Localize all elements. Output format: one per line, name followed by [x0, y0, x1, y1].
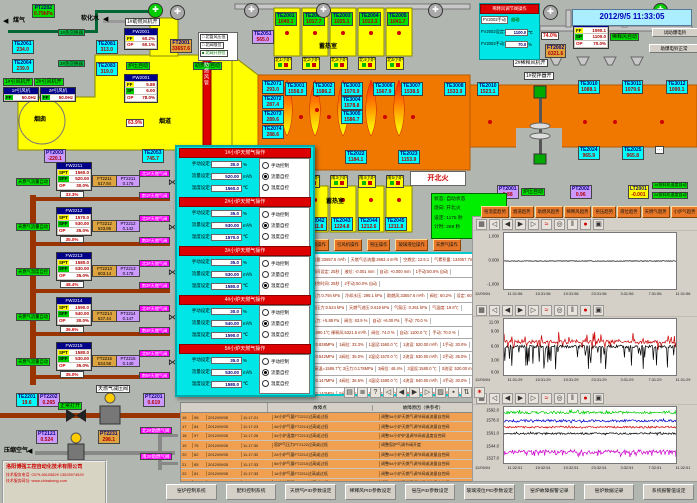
instrument-TE3001: TE30011558.0 [285, 82, 307, 96]
temp-set-input[interactable]: 1580.0 [211, 283, 242, 290]
instrument-value: 0.96 [572, 192, 590, 198]
spt-value: 1570.0 [75, 215, 90, 221]
mimic-label: ◀ [102, 16, 109, 24]
fan-icon: ✚ [170, 5, 185, 20]
mimic-label: 正常打开 [58, 402, 82, 410]
manual-set-input[interactable]: 35.0 [211, 259, 242, 266]
pressure-transmitter: PT2213 0.178 [116, 265, 140, 277]
op-label: OP [58, 363, 67, 369]
alarm-time: 11:17:32 [242, 452, 273, 457]
fv2002-man-unit: % [528, 42, 532, 47]
controller-param-value: 1090.1 [592, 28, 607, 34]
alarm-index: 19 [181, 443, 193, 448]
alarm-date: 2012/09/05 [207, 471, 242, 476]
south-gas-valve-label: 南1#天燃气阀 [139, 192, 170, 199]
y-axis-tick: 1.000 [489, 233, 499, 238]
toolbar-icon[interactable]: ◀ [502, 393, 513, 404]
toolbar-icon[interactable]: ▣ [593, 393, 604, 404]
burner-port-北4小炉: 北4小炉 [358, 57, 376, 70]
y-axis-tick: 1561.0 [486, 430, 499, 435]
instrument-value: 0.265 [40, 400, 58, 406]
toolbar-icon[interactable]: ▷ [528, 393, 539, 404]
toolbar-icon[interactable]: ≈ [541, 219, 552, 230]
instrument-TE2010: TE20101523.1 [477, 82, 499, 96]
instrument-PT2202: PT22020.79kPa [32, 4, 55, 18]
instrument-TE2043: TE20431224.8 [331, 217, 353, 231]
flow-set-input[interactable]: 540.00 [211, 320, 242, 327]
fault-cause-header: 故障原因（供参考） [373, 405, 473, 411]
burner-port-南4小炉: 南4小炉 [358, 175, 376, 188]
alarm-time: 11:17:33 [242, 462, 273, 467]
process-table-cell: 1手动:50.0% 自动 [414, 269, 452, 275]
process-table-cell: 2阀位: 35.0% [337, 354, 366, 360]
pt-value: 0.176 [118, 181, 138, 186]
nav-button[interactable]: 窑炉数据记录 [584, 484, 635, 500]
gas-mode-label: 天燃气流量自动 [16, 178, 50, 186]
toolbar-icon[interactable]: ▶ [515, 219, 526, 230]
instrument-PT2201: PT22010.619 [143, 393, 165, 407]
process-table-cell: 气累积量: 134057.7m³ [432, 257, 478, 263]
instrument-FT2002: FT20026321.6 [545, 44, 566, 58]
mimic-button[interactable]: 助爆电铃正常 [649, 44, 697, 53]
nav-button[interactable]: 玻璃液位PID参数设定 [464, 484, 515, 500]
toolbar-icon[interactable]: ◁ [489, 305, 500, 316]
alarm-code: 84 [193, 424, 207, 429]
alarm-row[interactable]: 20 82 2012/09/05 11:17:32 2#小炉气量FT2212过高… [181, 451, 473, 460]
controller-param-label: FF [126, 36, 134, 42]
fv2002-manual-button[interactable]: FV2002手动 [481, 16, 508, 24]
instrument-TE3010: TE30101088.1 [578, 80, 600, 94]
y-axis-tick: 6.00 [491, 343, 499, 348]
toolbar-icon[interactable]: ◀ [396, 387, 407, 398]
fan-icon: ✚ [316, 3, 331, 18]
radio-flow-auto[interactable]: 流量自控 [260, 220, 309, 231]
toolbar-icon[interactable]: ≈ [541, 393, 552, 404]
ft-value: 533.89 [94, 226, 115, 231]
toolbar-icon[interactable]: ◁ [383, 387, 394, 398]
alarm-date: 2012/09/05 [207, 433, 242, 438]
radio-manual-control[interactable]: 手动控制 [260, 160, 309, 171]
trend-button[interactable]: 窑压趋势 [592, 206, 616, 218]
gas-flow-controller: FW2211 SPT1560.0 SFF520.00 OP30.0% [56, 162, 92, 191]
process-table-row: 温度:1090.1℃ 稀释风:6321.6 m³/h阀位: 74.0 %自动: … [302, 327, 483, 339]
valve-position-value: 35.0% [60, 236, 84, 243]
toolbar-icon[interactable]: ▦ [476, 305, 487, 316]
instrument-TE2005: TE20051041.7 [387, 12, 409, 26]
alarm-time: 11:17:33 [242, 471, 273, 476]
toolbar-icon[interactable]: ‖ [567, 305, 578, 316]
spt-value: 1580.0 [75, 260, 90, 266]
x-axis-tick: 11:32:51 [501, 465, 529, 470]
manual-set-input[interactable]: 30.0 [211, 308, 242, 315]
operation-button[interactable]: 窑压操作 [367, 239, 391, 251]
flow-set-label: 流量设定: [179, 271, 211, 277]
radio-temp-auto[interactable]: 温度自控 [260, 231, 309, 242]
spt-label: SPT [58, 350, 69, 356]
toolbar-icon[interactable]: ≣ [357, 387, 368, 398]
process-table-cell: 3阀位: 48.4% [376, 366, 405, 372]
radio-temp-auto[interactable]: 温度自控 [260, 329, 309, 340]
chart-toolbar: ▦◁◀▶▷≈◎‖●▣ [473, 219, 697, 231]
radio-label: 温度自控 [271, 283, 289, 289]
toolbar-icon[interactable]: ▪ [448, 387, 459, 398]
x-axis-date: 12/09/04 [475, 465, 501, 470]
nav-button[interactable]: 系统报警值设定 [643, 484, 694, 500]
port-status-icon [368, 63, 372, 67]
flow-transmitter: FT2215 534.58 [92, 355, 117, 367]
alarm-index: 22 [181, 471, 193, 476]
instrument-value: 0.79kPa [34, 11, 53, 17]
alarm-row[interactable]: 21 85 2012/09/05 11:17:33 5#小炉气量FT2215过高… [181, 460, 473, 469]
radio-circle-icon [262, 369, 269, 376]
flow-set-input[interactable]: 530.00 [211, 369, 242, 376]
gas-flow-controller: FW2212 SPT1570.0 SFF530.00 OP35.0% [56, 207, 92, 236]
radio-label: 手动控制 [271, 261, 289, 267]
radio-circle-icon [262, 320, 269, 327]
temp-set-input[interactable]: 1570.0 [211, 234, 242, 241]
gas-control-row: 天燃气流量自动 FW2215 SPT1580.0 SFF530.00 OP35.… [0, 341, 179, 386]
gas-control-row: 天燃气温度自控 FW2213 SPT1580.0 SFF530.00 OP35.… [0, 251, 179, 296]
mimic-label: ◀ [2, 18, 9, 26]
trend-button[interactable]: 窑温度趋势 [481, 206, 509, 218]
controller-param-value: 60.1% [142, 42, 156, 48]
nav-button[interactable]: 窑压PID参数设定 [405, 484, 456, 500]
radio-flow-auto[interactable]: 流量自控 [260, 269, 309, 280]
instrument-value: 1153.9 [400, 157, 418, 163]
manual-unit: % [242, 211, 256, 216]
spt-label: SPT [58, 305, 69, 311]
x-axis-labels: 12/09/0411:32:5115:32:5119:32:5123:32:51… [475, 465, 697, 470]
burner-port-北2小炉: 北2小炉 [302, 57, 320, 70]
y-axis-tick: 0.00 [491, 370, 499, 375]
mimic-label: 烟道 [158, 119, 172, 126]
nav-button[interactable]: 稀释风PID参数设定 [345, 484, 396, 500]
port-status-icon [396, 181, 400, 185]
mimic-label: 1#引风机开 [3, 78, 33, 86]
instrument-value: 1224.8 [333, 224, 351, 230]
process-table-row: 炉膛压力: +5.88 Pa阀位: 63.9 %自动: +6.00 Pa手动: … [302, 315, 483, 327]
ft-value: 537.44 [94, 316, 115, 321]
manual-set-input[interactable]: 30.0 [211, 161, 242, 168]
burner-port-北1小炉: 北1小炉 [274, 57, 292, 70]
trend-button[interactable]: 助燃风趋势 [535, 206, 563, 218]
toolbar-icon[interactable]: ▷ [528, 219, 539, 230]
nav-button[interactable]: 窑炉故障报警记录 [524, 484, 575, 500]
toolbar-icon[interactable]: ● [580, 393, 591, 404]
instrument-value: 1088.1 [580, 87, 598, 93]
radio-flow-auto[interactable]: 流量自控 [260, 318, 309, 329]
instrument-TE2083: TE2083319.0 [96, 62, 118, 76]
spt-label: SPT [58, 170, 69, 176]
fan-icon: ✚ [244, 3, 259, 18]
toolbar-icon[interactable]: ▷ [422, 387, 433, 398]
north-gas-valve-label: 北3#天燃气阀 [139, 260, 170, 267]
instrument-value: 239.0 [14, 66, 32, 72]
alarm-fault-point: 3#小炉温度FT2213过高或过低 [273, 433, 380, 439]
mimic-label: 煤气 [12, 18, 26, 25]
instrument-value: 1017.7 [305, 19, 323, 25]
flow-set-label: 流量设定: [179, 173, 211, 179]
port-status-icon [340, 181, 344, 185]
operation-button[interactable]: 玻璃液位操作 [395, 239, 427, 251]
temp-set-input[interactable]: 1590.0 [211, 332, 242, 339]
controller-tag: FW2213 [57, 253, 91, 259]
process-table-cell: 手动: 70.0 % [430, 330, 458, 336]
manual-set-label: 手动设定: [179, 161, 211, 167]
instrument-TE2024: TE2024965.9 [578, 146, 600, 160]
mimic-label: 蓄热室 [325, 199, 345, 206]
alarm-code: 82 [193, 452, 207, 457]
alarm-fault-cause: 调整2#小炉天燃气调节阀或流量自控阀 [380, 452, 473, 458]
mimic-label: □ 北管风压低 [200, 34, 228, 41]
fire-north-button[interactable]: 开北火 [410, 171, 466, 186]
toolbar-icon[interactable]: ◎ [554, 393, 565, 404]
toolbar-icon[interactable]: ‖ [567, 393, 578, 404]
mimic-label: 1#投料机速度自动 [652, 182, 688, 189]
trend-button[interactable]: 液位趋势 [617, 206, 641, 218]
alarm-fault-point: 窑炉气压力PT2122过高或过低 [273, 442, 380, 448]
nav-button[interactable]: 配料控制系统 [226, 484, 277, 500]
process-table-cell: 3温设:1580.0 ℃ [405, 366, 439, 372]
instrument-value: 1586.7 [343, 117, 361, 123]
instrument-value: 1184.1 [347, 157, 365, 163]
sff-label: SFF [58, 311, 69, 317]
toolbar-icon[interactable]: ▣ [593, 305, 604, 316]
mimic-label: 北2#助燃气阀 [140, 427, 172, 434]
radio-flow-auto[interactable]: 流量自控 [260, 367, 309, 378]
alarm-row[interactable]: 22 81 2012/09/05 11:17:33 1#小炉气量FT2211过高… [181, 469, 473, 478]
sff-label: SFF [58, 176, 69, 182]
op-value: 30.0% [76, 318, 90, 324]
instrument-value: 1212.6 [360, 224, 378, 230]
trend-button[interactable]: 烟道趋势 [510, 206, 534, 218]
alarm-code: 97 [193, 433, 207, 438]
pt-value: 0.140 [118, 361, 138, 366]
radio-temp-auto[interactable]: 温度自控 [260, 280, 309, 291]
trend-button[interactable]: 小炉气趋势 [671, 206, 697, 218]
instrument-value: 965.8 [624, 153, 642, 159]
radio-label: 手动控制 [271, 163, 289, 169]
toolbar-icon[interactable]: ⇅ [461, 387, 472, 398]
alarm-row[interactable]: 16 98 2012/09/05 11:17:21 3#小炉气量FT2212过高… [181, 413, 473, 422]
mimic-label: 1#助燃风机开 [125, 18, 160, 26]
pressure-transmitter: PT2215 0.140 [116, 355, 140, 367]
manual-set-label: 手动设定: [179, 210, 211, 216]
temp-unit: ℃ [242, 234, 256, 240]
controller-param-value: 70.0% [593, 41, 607, 47]
mimic-label: 74.0% [541, 32, 559, 40]
toolbar-icon[interactable]: ▨ [435, 387, 446, 398]
mimic-label: 1#热交换器 [58, 29, 85, 36]
nav-button[interactable]: 窑炉控制系统 [166, 484, 217, 500]
manual-set-label: 手动设定: [179, 308, 211, 314]
alarm-row[interactable]: 18 97 2012/09/05 11:17:26 3#小炉温度FT2213过高… [181, 432, 473, 441]
manual-set-input[interactable]: 35.0 [211, 210, 242, 217]
ft-value: 534.58 [94, 361, 115, 366]
flow-transmitter: FT2211 517.84 [92, 175, 117, 187]
instrument-TE2201: TE220119.6 [16, 393, 38, 407]
process-table-cell: 2手动:50.0% 自动 [342, 281, 380, 287]
radio-temp-auto[interactable]: 温度自控 [260, 378, 309, 389]
process-table-cell: 4流设: 540.00 m³/h [401, 378, 441, 384]
toolbar-icon[interactable]: ◎ [554, 219, 565, 230]
alarm-time: 11:17:21 [242, 415, 273, 420]
toolbar-icon[interactable]: ◁ [489, 219, 500, 230]
toolbar-icon[interactable]: ▶ [409, 387, 420, 398]
chart-plot-area [503, 318, 677, 376]
port-status-icon [312, 63, 316, 67]
op-value: 30.0% [76, 183, 90, 189]
toolbar-icon[interactable]: ▶ [515, 305, 526, 316]
instrument-TE3012: TE30121090.1 [666, 80, 688, 94]
toolbar-icon[interactable]: ◎ [554, 305, 565, 316]
alarm-code: 81 [193, 471, 207, 476]
mimic-label: 2#稀释风机开 [513, 59, 548, 67]
spt-value: 1580.0 [75, 350, 90, 356]
toolbar-icon[interactable]: ‖ [567, 219, 578, 230]
instrument-value: 1586.2 [315, 89, 333, 95]
toolbar-icon[interactable]: ? [370, 387, 381, 398]
sff-value: 540.00 [75, 311, 90, 317]
toolbar-icon[interactable]: ◀ [502, 305, 513, 316]
trend-button[interactable]: 天燃气趋势 [642, 206, 670, 218]
manual-set-input[interactable]: 35.0 [211, 357, 242, 364]
toolbar-icon[interactable]: ▶ [515, 393, 526, 404]
ft-value: 517.84 [94, 181, 115, 186]
temp-set-input[interactable]: 1580.0 [211, 381, 242, 388]
instrument-value: 1558.0 [287, 89, 305, 95]
radio-temp-auto[interactable]: 温度自控 [260, 182, 309, 193]
process-table-cell: 自动: 1100.0 ℃ [398, 330, 431, 336]
chart-plot-area [503, 406, 677, 464]
control-mode-radios: 手动控制 流量自控 温度自控 [259, 354, 310, 394]
port-status-icon [334, 181, 338, 185]
process-table-cell: 天燃气进压:0.619 kPa [347, 305, 392, 311]
burner-gas-panel-section: 1#小炉天燃气操作 手动设定: 30.0 % 流量设定: 520.00 m³/h… [179, 148, 311, 196]
radio-manual-control[interactable]: 手动控制 [260, 307, 309, 318]
trend-chart-1: ▦◁◀▶▷≈◎‖●▣ 1.0000.000-1.000 12/09/0411:3… [473, 219, 697, 303]
flow-transmitter: FT2212 533.89 [92, 220, 117, 232]
y-axis-tick: 1578.0 [486, 418, 499, 423]
toolbar-icon[interactable]: ● [580, 219, 591, 230]
toolbar-icon[interactable]: ● [580, 305, 591, 316]
panel-section-title: 1#小炉天燃气操作 [179, 148, 311, 158]
instrument-TE2061: TE2061234.0 [12, 40, 34, 54]
instrument-TE2051: TE2051565.0 [252, 30, 274, 44]
instrument-value: 234.0 [14, 47, 32, 53]
radio-manual-control[interactable]: 手动控制 [260, 356, 309, 367]
trend-button[interactable]: 稀释风趋势 [564, 206, 592, 218]
pt-value: 0.178 [118, 271, 138, 276]
temp-set-label: 温度设定: [179, 332, 211, 338]
y-axis-tick: 1527.0 [486, 456, 499, 461]
instrument-TE2044: TE20441212.6 [358, 217, 380, 231]
process-table-row: 3碹顶高温=1586.7℃ 3压力:0.178MPa3阀位: 48.4%3温设:… [302, 364, 483, 376]
toolbar-icon[interactable]: ◀ [502, 219, 513, 230]
temp-set-label: 温度设定: [179, 234, 211, 240]
instrument-value: 1570.9 [343, 89, 361, 95]
instrument-value: 1533.9 [446, 89, 464, 95]
controller-param-label: FF [575, 28, 583, 34]
instrument-TE2001: TE20011040.1 [275, 12, 297, 26]
fault-point-header: 故障点 [268, 405, 373, 411]
toolbar-icon[interactable]: ▦ [476, 219, 487, 230]
toolbar-icon[interactable]: ◁ [489, 393, 500, 404]
nav-button[interactable]: 天燃气PID参数设定 [285, 484, 336, 500]
panel-section-title: 5#小炉天燃气操作 [179, 344, 311, 354]
radio-circle-icon [262, 358, 269, 365]
alarm-time: 11:17:23 [242, 424, 273, 429]
toolbar-icon[interactable]: ✶ [474, 387, 485, 398]
scada-furnace-screen: ◀煤气PT22020.79kPa软化水◀1#热交换器2#热交换器TE206123… [0, 0, 697, 503]
south-gas-valve-label: 南3#天燃气阀 [139, 282, 170, 289]
radio-manual-control[interactable]: 手动控制 [260, 258, 309, 269]
alarm-date: 2012/09/05 [207, 462, 242, 467]
x-axis-tick: 7:31:29 [641, 377, 669, 382]
temp-set-input[interactable]: 1560.0 [211, 185, 242, 192]
alarm-fault-cause: 调整3#小炉炉温调节阀或温度自控阀 [380, 433, 473, 439]
mimic-label: 2#引风机开 [34, 78, 64, 86]
alarm-row[interactable]: 23 83 2012/09/05 11:17:33 3#小炉气量FT2213过高… [181, 479, 473, 482]
controller-tag: 1#引风机 [4, 88, 38, 94]
trend-chart-3: ▦◁◀▶▷≈◎‖●▣ 1592.01578.01561.01544.01527.… [473, 393, 697, 477]
mimic-label: 助燃风管 [202, 62, 210, 86]
radio-flow-auto[interactable]: 流量自控 [260, 171, 309, 182]
trend-series [504, 345, 676, 369]
x-axis-tick: 15:32:51 [529, 465, 557, 470]
fv2002-man-input[interactable]: 70.0 [505, 41, 528, 48]
alarm-code: 98 [193, 415, 207, 420]
south-gas-valve-label: 南4#天燃气阀 [139, 327, 170, 334]
x-axis-tick: 15:31:29 [529, 377, 557, 382]
alarm-fault-point: 1#小炉气量FT2211过高或过低 [273, 471, 380, 477]
instrument-value: 33657.6 [172, 46, 190, 52]
sff-value: 530.00 [75, 266, 90, 272]
x-axis-date: 12/09/04 [475, 291, 501, 296]
process-table-cell: 1阀位: 33.3% [337, 342, 366, 348]
sff-label: SFF [58, 356, 69, 362]
alarm-row[interactable]: 17 84 2012/09/05 11:17:23 4#小炉气量FT2214过高… [181, 422, 473, 431]
toolbar-icon[interactable]: ▷ [528, 305, 539, 316]
operation-button[interactable]: 引风机操作 [334, 239, 362, 251]
alarm-code: 85 [193, 462, 207, 467]
instrument-PT2231: PT2231298.1 [98, 430, 120, 444]
alarm-fault-point: 4#小炉气量FT2214过高或过低 [273, 424, 380, 430]
instrument-value: 565.0 [254, 37, 272, 43]
mimic-label: 2#热交换器 [58, 60, 85, 67]
toolbar-icon[interactable]: ▤ [344, 387, 355, 398]
toolbar-icon[interactable]: ≈ [541, 305, 552, 316]
flow-set-input[interactable]: 530.00 [211, 271, 242, 278]
radio-manual-control[interactable]: 手动控制 [260, 209, 309, 220]
operation-button[interactable]: 天燃气操作 [433, 239, 461, 251]
mimic-button[interactable]: 试助爆电铃 [652, 28, 697, 37]
burner-gas-panel-section: 3#小炉天燃气操作 手动设定: 35.0 % 流量设定: 530.00 m³/h… [179, 246, 311, 294]
chart-plot-area [503, 232, 677, 290]
flow-set-input[interactable]: 530.00 [211, 222, 242, 229]
flow-set-label: 流量设定: [179, 369, 211, 375]
toolbar-icon[interactable]: ▣ [593, 219, 604, 230]
y-axis-tick: -1.000 [487, 282, 499, 287]
manual-unit: % [242, 260, 256, 265]
controller-tag: 2#引风机 [41, 88, 75, 94]
alarm-row[interactable]: 19 75 2012/09/05 11:17:30 窑炉气压力PT2122过高或… [181, 441, 473, 450]
x-axis-tick: 19:31:29 [557, 377, 585, 382]
y-axis-tick: 9.00 [491, 329, 499, 334]
flow-set-input[interactable]: 520.00 [211, 173, 242, 180]
fv2002-set-input[interactable]: 1100.0 [505, 29, 528, 36]
panel-section-title: 4#小炉天燃气操作 [179, 295, 311, 305]
